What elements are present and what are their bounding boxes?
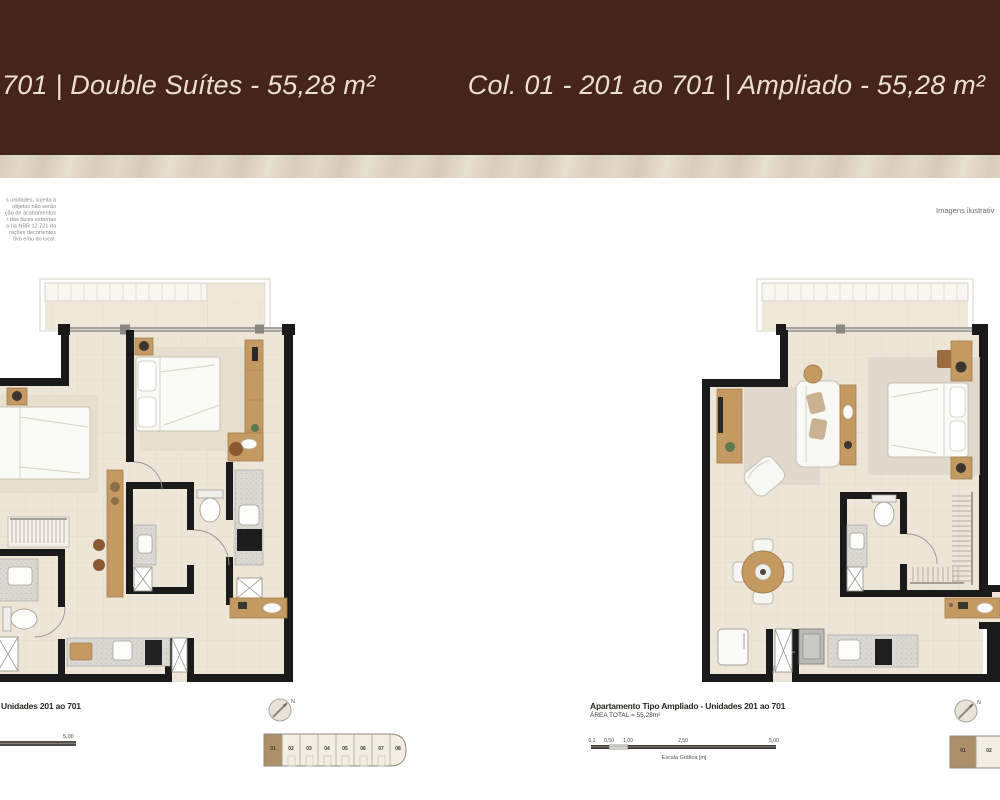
kitchen-sink xyxy=(113,641,132,660)
shower xyxy=(134,567,152,591)
plant xyxy=(725,442,735,452)
keyplan-unit-label: 03 xyxy=(306,746,312,752)
fridge xyxy=(718,629,748,665)
closet-rail xyxy=(8,517,69,547)
keyplan-unit-label: 07 xyxy=(378,746,384,752)
side-table xyxy=(804,365,822,383)
tv xyxy=(252,347,258,361)
floorplan-double-suites xyxy=(0,277,300,689)
stool xyxy=(93,539,105,551)
cutting-board xyxy=(70,643,92,660)
toilet-tank xyxy=(197,490,223,498)
disclaimer-line: tivo e/ou do local. xyxy=(0,236,56,243)
cooktop xyxy=(145,640,162,665)
bedroom xyxy=(868,341,980,479)
bench xyxy=(937,350,953,368)
keyplan-unit-label: 05 xyxy=(342,746,348,752)
bed-suite1 xyxy=(0,407,90,479)
floor-mat xyxy=(237,578,262,598)
nightstand-top xyxy=(951,341,972,381)
chair xyxy=(753,539,773,552)
terrace xyxy=(757,279,973,331)
kitchen-sink xyxy=(838,640,860,660)
toilet xyxy=(200,498,220,522)
scale-label: 1,00 xyxy=(623,738,633,744)
compass-icon: N xyxy=(955,700,981,722)
marble-texture-strip xyxy=(0,155,1000,178)
compass-north-label: N xyxy=(291,699,295,705)
compass-icon: N xyxy=(269,699,295,721)
scale-label: 0,1 xyxy=(589,738,596,744)
keyplan-unit-label: 01 xyxy=(960,748,966,754)
cooktop xyxy=(875,639,892,665)
left-plan-title: 701 | Double Suítes - 55,28 m² xyxy=(2,70,375,101)
left-scale-bar: 5,00 xyxy=(0,728,92,760)
sink xyxy=(138,535,152,553)
tv xyxy=(718,397,723,433)
sofa xyxy=(796,381,840,467)
toilet-tank xyxy=(3,607,11,631)
right-scale-bar: 0,1 0,50 1,00 2,50 5,00 Escala Gráfica [… xyxy=(585,728,795,766)
keyplan-unit-label: 04 xyxy=(324,746,330,752)
keyplan-unit-label: 02 xyxy=(288,746,294,752)
toilet xyxy=(11,609,37,629)
keyplan-unit-label: 01 xyxy=(270,746,276,752)
right-plan-caption: Apartamento Tipo Ampliado - Unidades 201… xyxy=(590,701,785,711)
sink xyxy=(850,533,864,549)
bed-suite2 xyxy=(136,357,220,431)
legal-disclaimer: s unidades, sujeita à objetos não serão … xyxy=(0,197,56,243)
entry-mat xyxy=(775,629,792,672)
toilet-tank xyxy=(872,495,896,502)
pendant-lamp xyxy=(12,391,22,401)
stool xyxy=(93,559,105,571)
keyplan-unit-label: 08 xyxy=(395,746,401,752)
console xyxy=(840,385,856,465)
sink xyxy=(8,567,32,585)
scale-label: 5,00 xyxy=(63,734,74,740)
scale-caption: Escala Gráfica [m] xyxy=(662,755,707,761)
terrace xyxy=(40,279,270,331)
right-plan-area: ÁREA TOTAL = 55,28m² xyxy=(590,712,660,719)
nightstand-bottom xyxy=(951,457,972,479)
bed xyxy=(888,383,968,457)
building-keyplan: 01 02 xyxy=(950,736,1000,768)
right-plan-title: Col. 01 - 201 ao 701 | Ampliado - 55,28 … xyxy=(468,70,985,101)
plant xyxy=(251,424,259,432)
floorplan-ampliado xyxy=(700,277,1000,689)
pendant-lamp xyxy=(139,341,149,351)
washer xyxy=(237,529,262,551)
desk xyxy=(945,598,1000,618)
chair xyxy=(229,442,243,456)
throw-pillow xyxy=(808,418,827,440)
illustrative-images-note: Imagens ilustrativ xyxy=(936,206,994,215)
entry-mat xyxy=(172,638,187,672)
shower xyxy=(847,567,863,591)
scale-label: 0,50 xyxy=(604,738,614,744)
desk xyxy=(228,433,263,461)
right-keyplan: N 01 02 xyxy=(946,692,1000,774)
building-keyplan: 01 02 03 04 05 06 07 08 xyxy=(264,734,406,766)
keyplan-unit-label: 02 xyxy=(986,748,992,754)
left-keyplan: N 01 02 03 04 05 06 07 08 xyxy=(260,692,410,772)
keyplan-unit-label: 06 xyxy=(360,746,366,752)
suite2 xyxy=(135,338,263,461)
toilet xyxy=(874,502,894,526)
compass-north-label: N xyxy=(977,700,981,706)
shower xyxy=(0,637,18,671)
scale-label: 2,50 xyxy=(678,738,688,744)
tub xyxy=(239,505,259,525)
oven xyxy=(799,629,824,664)
header-band: 701 | Double Suítes - 55,28 m² Col. 01 -… xyxy=(0,0,1000,155)
brochure-page: 701 | Double Suítes - 55,28 m² Col. 01 -… xyxy=(0,0,1000,800)
desk-bottom xyxy=(230,598,287,618)
left-plan-caption: Unidades 201 ao 701 xyxy=(1,701,81,711)
scale-label: 5,00 xyxy=(769,738,779,744)
